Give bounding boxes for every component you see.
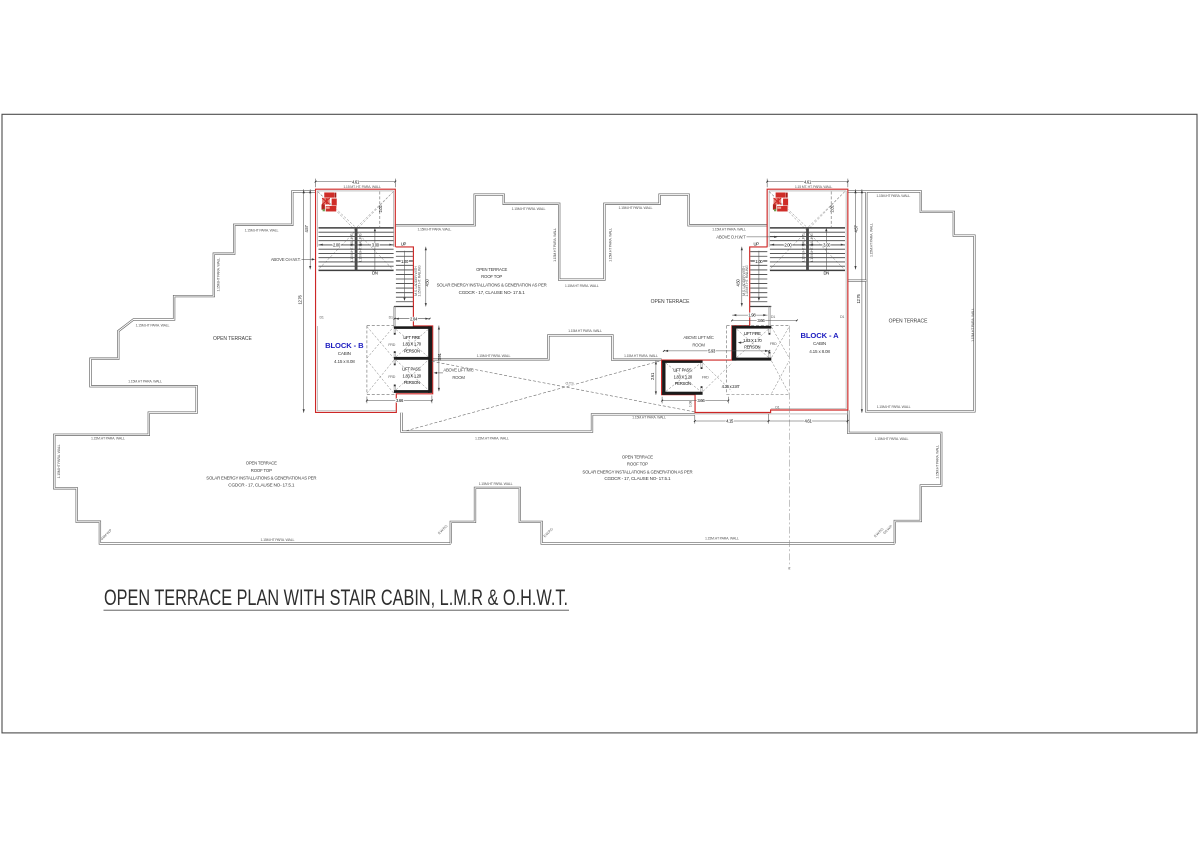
svg-text:4.36 x 2.87: 4.36 x 2.87: [722, 384, 741, 389]
svg-text:2.61: 2.61: [650, 372, 655, 380]
svg-text:4.57: 4.57: [854, 225, 859, 233]
svg-text:O.T.S: O.T.S: [566, 381, 575, 385]
svg-text:SOLAR ENERGY INSTALLATIONS & G: SOLAR ENERGY INSTALLATIONS & GENERATION …: [582, 469, 693, 474]
svg-text:LIFT FIRE: LIFT FIRE: [744, 331, 761, 336]
svg-text:3.00: 3.00: [823, 242, 831, 247]
svg-text:ROOF TOP: ROOF TOP: [251, 468, 272, 473]
svg-text:SOLAR ENERGY INSTALLATIONS & G: SOLAR ENERGY INSTALLATIONS & GENERATION …: [437, 283, 548, 288]
svg-text:1.15 M.HT. RAILING: 1.15 M.HT. RAILING: [359, 233, 363, 262]
svg-text:3.66: 3.66: [697, 398, 705, 403]
svg-text:4.50: 4.50: [425, 279, 430, 287]
svg-text:1.15M.HT PARA. WALL: 1.15M.HT PARA. WALL: [565, 284, 599, 288]
svg-text:2.02: 2.02: [830, 205, 835, 213]
svg-text:4.15: 4.15: [726, 419, 734, 424]
svg-text:FRD: FRD: [770, 342, 777, 346]
svg-text:1.15 M.HT. RAILING: 1.15 M.HT. RAILING: [810, 233, 814, 262]
svg-text:1.15M.HT PARA. WALL: 1.15M.HT PARA. WALL: [477, 354, 511, 358]
svg-text:ABOVE LIFT M/C: ABOVE LIFT M/C: [683, 335, 713, 340]
svg-text:4.61: 4.61: [804, 179, 812, 184]
svg-text:2.00: 2.00: [333, 242, 341, 247]
svg-text:1.15 M.HT. RAILING: 1.15 M.HT. RAILING: [802, 233, 806, 262]
svg-text:1.15M.HT PARA. WALL: 1.15M.HT PARA. WALL: [632, 416, 666, 420]
svg-text:1.08: 1.08: [688, 401, 692, 407]
svg-text:3.66: 3.66: [757, 318, 765, 323]
svg-text:1.15M.HT PARA. WALL: 1.15M.HT PARA. WALL: [609, 228, 613, 262]
svg-text:2.00: 2.00: [784, 242, 792, 247]
svg-text:LIFT FIRE: LIFT FIRE: [403, 335, 420, 340]
svg-text:OPEN TERRACE PLAN WITH STAIR C: OPEN TERRACE PLAN WITH STAIR CABIN, L.M.…: [104, 585, 568, 610]
svg-text:1.15M.HT PARA. WALL: 1.15M.HT PARA. WALL: [553, 228, 557, 262]
svg-text:1.15M.HT PARA. WALL: 1.15M.HT PARA. WALL: [128, 380, 162, 384]
svg-text:1.15M.HT PARA. WALL: 1.15M.HT PARA. WALL: [875, 437, 909, 441]
svg-text:1.15 MT. HT. PARA. WALL: 1.15 MT. HT. PARA. WALL: [795, 185, 832, 189]
svg-text:PERSON: PERSON: [404, 348, 420, 353]
svg-text:BLOCK - B: BLOCK - B: [325, 341, 364, 350]
svg-text:LIFT PASS.: LIFT PASS.: [673, 368, 692, 373]
svg-text:1.15M.HT PARA. WALL: 1.15M.HT PARA. WALL: [971, 308, 975, 342]
svg-text:ROOM: ROOM: [692, 342, 705, 347]
svg-text:4.50: 4.50: [736, 279, 741, 287]
svg-text:4.61: 4.61: [804, 419, 812, 424]
svg-text:1.15M.HT PARA. WALL: 1.15M.HT PARA. WALL: [619, 206, 653, 210]
svg-text:FRD: FRD: [388, 375, 395, 379]
svg-text:1.83 X 1.20: 1.83 X 1.20: [403, 373, 422, 378]
svg-text:ABOVE LIFT M/C: ABOVE LIFT M/C: [443, 368, 473, 373]
svg-text:12.76: 12.76: [298, 295, 303, 305]
svg-text:1.15M.HT PARA. WALL: 1.15M.HT PARA. WALL: [512, 207, 546, 211]
svg-text:CABIN: CABIN: [813, 341, 826, 346]
svg-text:LIFT PASS.: LIFT PASS.: [402, 367, 421, 372]
svg-text:DN: DN: [824, 271, 830, 276]
svg-text:OPEN TERRACE: OPEN TERRACE: [622, 455, 653, 460]
svg-text:2.02: 2.02: [378, 205, 383, 213]
svg-text:CGDCR - 17, CLAUSE NO- 17.5.1: CGDCR - 17, CLAUSE NO- 17.5.1: [604, 476, 671, 481]
svg-text:DN: DN: [372, 271, 378, 276]
svg-text:ABOVE O.H.W.T: ABOVE O.H.W.T: [716, 234, 746, 239]
svg-text:CABIN: CABIN: [338, 351, 351, 356]
svg-text:1.98: 1.98: [748, 313, 756, 318]
svg-text:OPEN TERRACE: OPEN TERRACE: [651, 299, 690, 305]
svg-text:1.15M.HT PARA. WALL: 1.15M.HT PARA. WALL: [417, 228, 451, 232]
svg-text:1.15M.HT PARA. WALL: 1.15M.HT PARA. WALL: [870, 223, 874, 257]
svg-text:UP: UP: [401, 241, 407, 246]
svg-text:3.00: 3.00: [372, 242, 380, 247]
svg-text:ABOVE O.H.W.T.: ABOVE O.H.W.T.: [271, 257, 301, 262]
svg-text:PERSON: PERSON: [744, 345, 760, 350]
svg-text:ROOF TOP: ROOF TOP: [627, 462, 648, 467]
svg-text:1.15M.HT PARA. WALL: 1.15M.HT PARA. WALL: [479, 482, 513, 486]
svg-text:ROOM: ROOM: [452, 375, 465, 380]
svg-text:1.15M.HT PARA. WALL: 1.15M.HT PARA. WALL: [57, 444, 61, 478]
svg-text:CGDCR - 17, CLAUSE NO- 17.5.1: CGDCR - 17, CLAUSE NO- 17.5.1: [228, 483, 295, 488]
svg-text:FRD: FRD: [388, 343, 395, 347]
svg-text:1.15 MT. HT. RAILING: 1.15 MT. HT. RAILING: [745, 265, 749, 297]
svg-text:FRD: FRD: [702, 376, 709, 380]
svg-text:D1: D1: [771, 315, 775, 319]
svg-text:1.15M.HT PARA. WALL: 1.15M.HT PARA. WALL: [876, 194, 910, 198]
svg-text:1.15 M.HT. RAILING: 1.15 M.HT. RAILING: [350, 233, 354, 262]
svg-text:1.15M.HT PARA. WALL: 1.15M.HT PARA. WALL: [261, 538, 295, 542]
svg-text:1.15M.HT PARA. WALL: 1.15M.HT PARA. WALL: [877, 405, 911, 409]
svg-text:ROOF TOP: ROOF TOP: [481, 274, 502, 279]
svg-text:1.15 MT. HT. RAILING: 1.15 MT. HT. RAILING: [417, 265, 421, 297]
svg-text:1.15M.HT PARA. WALL: 1.15M.HT PARA. WALL: [475, 437, 509, 441]
svg-text:1.15M.HT PARA. WALL: 1.15M.HT PARA. WALL: [91, 436, 125, 440]
svg-text:PERSON: PERSON: [675, 381, 691, 386]
svg-text:4.15 x 8.08: 4.15 x 8.08: [334, 359, 355, 364]
svg-text:1.15M.HT PARA. WALL: 1.15M.HT PARA. WALL: [245, 228, 279, 232]
svg-text:1.15M.HT PARA. WALL: 1.15M.HT PARA. WALL: [624, 354, 658, 358]
svg-text:PERSON: PERSON: [404, 380, 420, 385]
svg-text:4.15 x 8.08: 4.15 x 8.08: [809, 349, 830, 354]
svg-text:12.76: 12.76: [856, 294, 861, 304]
svg-text:OPEN TERRACE: OPEN TERRACE: [476, 267, 507, 272]
svg-text:D1: D1: [840, 315, 844, 319]
svg-text:CGDCR - 17, CLAUSE NO- 17.5.1: CGDCR - 17, CLAUSE NO- 17.5.1: [459, 290, 526, 295]
svg-text:1.83 X 1.70: 1.83 X 1.70: [403, 342, 422, 347]
svg-text:1.15M.HT PARA. WALL: 1.15M.HT PARA. WALL: [712, 228, 746, 232]
svg-text:1.00: 1.00: [401, 259, 409, 264]
svg-text:1.15 MT. HT. PARA. WALL: 1.15 MT. HT. PARA. WALL: [343, 185, 380, 189]
svg-text:2.04: 2.04: [410, 316, 418, 321]
svg-text:1.15M.HT PARA. WALL: 1.15M.HT PARA. WALL: [936, 445, 940, 479]
svg-text:OPEN TERRACE: OPEN TERRACE: [213, 336, 252, 342]
svg-text:1.15M.HT PARA. WALL: 1.15M.HT PARA. WALL: [568, 329, 602, 333]
svg-text:UP: UP: [753, 241, 759, 246]
svg-text:3.66: 3.66: [396, 398, 404, 403]
svg-text:BLOCK - A: BLOCK - A: [800, 331, 839, 340]
svg-text:1.00: 1.00: [755, 259, 763, 264]
svg-text:1.83 X 1.70: 1.83 X 1.70: [743, 338, 762, 343]
svg-text:4.61: 4.61: [352, 179, 360, 184]
svg-text:D1: D1: [320, 316, 324, 320]
svg-text:SOLAR ENERGY INSTALLATIONS & G: SOLAR ENERGY INSTALLATIONS & GENERATION …: [206, 476, 317, 481]
svg-text:OPEN TERRACE: OPEN TERRACE: [889, 319, 928, 325]
svg-text:4.57: 4.57: [304, 225, 309, 233]
svg-text:1.15M.HT PARA. WALL: 1.15M.HT PARA. WALL: [217, 258, 221, 292]
svg-text:3.91: 3.91: [437, 353, 442, 361]
svg-text:5.93: 5.93: [708, 349, 716, 354]
svg-text:D1: D1: [775, 405, 779, 409]
svg-text:1.15M.HT PARA. WALL: 1.15M.HT PARA. WALL: [136, 323, 170, 327]
svg-text:1.15M.HT PARA. WALL: 1.15M.HT PARA. WALL: [705, 536, 739, 540]
svg-text:OPEN TERRACE: OPEN TERRACE: [246, 461, 277, 466]
svg-text:D1: D1: [389, 316, 393, 320]
